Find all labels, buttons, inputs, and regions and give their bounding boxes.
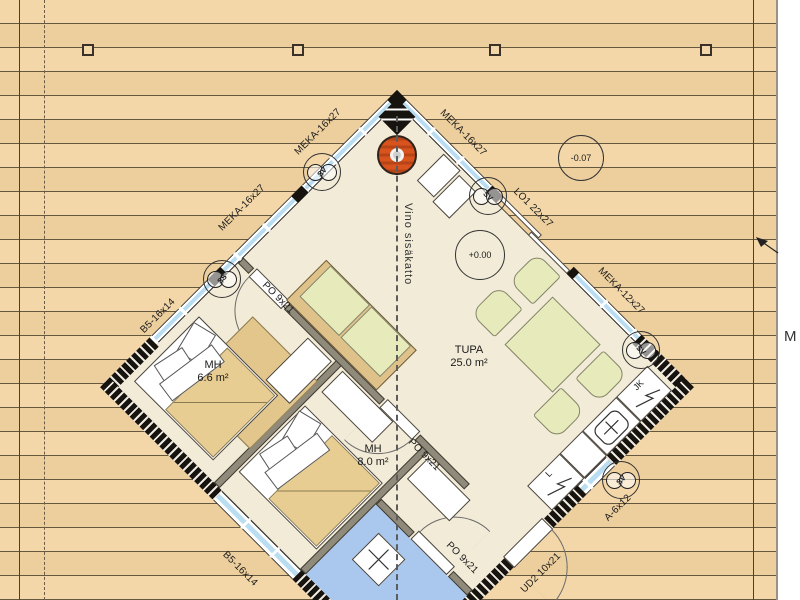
room-name: TUPA [450,344,487,357]
room-area: 6.6 m² [197,372,228,385]
deck-post [489,44,501,56]
room-area: 8.0 m² [357,456,388,469]
deck-edge-line-left [19,0,20,600]
deck-border-right [776,0,778,600]
deck-post [82,44,94,56]
ridge-dashed-line [396,116,398,600]
electrical-symbol: SS [203,260,241,298]
leader-arrow-icon [752,234,780,256]
fridge-label: JK [631,378,646,393]
margin-letter: M [784,328,797,345]
room-label-tupa: TUPA 25.0 m² [450,344,487,370]
deck-edge-line-right [753,0,754,600]
deck-centerline-left [44,0,45,600]
room-label-mh80: MH 8.0 m² [357,443,388,469]
level-value: +0.00 [469,250,492,260]
room-name: MH [197,359,228,372]
stove-label: L [543,468,554,479]
level-marker-inside: +0.00 [455,230,505,280]
floor-plan-canvas: JK L Vino sisäkatto +0.00 [0,0,800,600]
deck-post [700,44,712,56]
level-marker-deck: -0.07 [558,135,604,181]
electrical-symbol: SV [303,153,341,191]
electrical-symbol: SV [622,331,660,369]
ceiling-note: Vino sisäkatto [402,203,414,285]
level-value: -0.07 [571,153,592,163]
room-label-mh66: MH 6.6 m² [197,359,228,385]
room-name: MH [357,443,388,456]
electrical-symbol: SV [469,177,507,215]
room-area: 25.0 m² [450,357,487,370]
deck-post [292,44,304,56]
electrical-symbol: SV [602,461,640,499]
